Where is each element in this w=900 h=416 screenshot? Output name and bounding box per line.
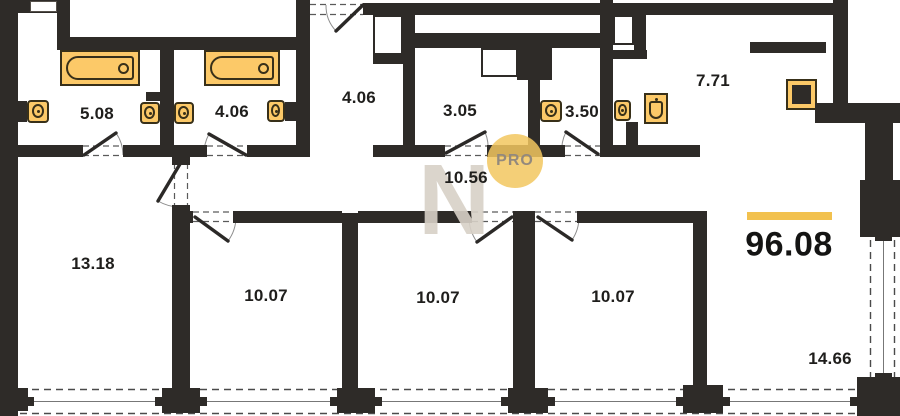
room-area-label-wc-2: 3.50 <box>565 102 599 122</box>
vent-niche <box>30 1 57 12</box>
watermark-logo-letter: N <box>418 150 490 250</box>
room-area-label-bedroom-3: 10.07 <box>416 288 460 308</box>
room-area-label-corridor: 10.56 <box>444 168 488 188</box>
watermark-pro-text: PRO <box>496 152 534 170</box>
wall-kitchen-niche <box>750 42 826 53</box>
wall-corr-bot-d <box>577 211 693 223</box>
window-nub <box>723 397 730 406</box>
room-area-label-bathroom-2: 4.06 <box>215 102 249 122</box>
room-area-label-wc-1: 3.05 <box>443 101 477 121</box>
duct-wc1-shaft <box>481 48 518 77</box>
wall-corr-top-c <box>247 145 296 157</box>
wall-kitchen-bottom <box>600 145 700 157</box>
wall-step-topleft <box>57 13 70 39</box>
window-nub <box>155 397 162 406</box>
total-area-value: 96.08 <box>745 226 833 265</box>
pillar-bottom-1 <box>162 388 200 413</box>
window-nub <box>676 397 683 406</box>
watermark-pro-badge: PRO <box>487 134 543 188</box>
pillar-bottom-0 <box>14 388 28 411</box>
window-nub <box>501 397 508 406</box>
wall-top-main <box>415 3 845 15</box>
window-nub <box>850 397 857 406</box>
wall-corr-bot-b <box>233 211 342 223</box>
room-area-label-bedroom-4: 10.07 <box>591 287 635 307</box>
window-nub <box>200 397 207 406</box>
duct-kitchen-shaft <box>613 15 634 45</box>
duct-shaft-hall <box>373 15 403 55</box>
wall-bathrooms-top <box>57 37 310 50</box>
wall-bed1-lower <box>172 205 190 390</box>
wall-left-exterior <box>0 0 18 416</box>
window-nub <box>875 373 892 382</box>
wall-step-right <box>815 103 900 123</box>
wall-bath-divider-stub <box>146 92 162 101</box>
wall-kitchen-shaft-bottom <box>613 50 647 59</box>
window-nub <box>375 397 382 406</box>
floor-plan: 5.08 4.06 4.06 3.05 3.50 7.71 10.56 13.1… <box>0 0 900 416</box>
wall-corr-bot-a <box>183 211 193 223</box>
wall-bath-divider <box>160 50 174 157</box>
wall-hall-left <box>296 0 310 157</box>
wall-living-divider <box>693 211 707 390</box>
wall-bed3-divider <box>513 211 535 390</box>
room-area-label-entry-hall: 4.06 <box>342 88 376 108</box>
pillar-right-upper <box>860 180 900 237</box>
room-area-label-bathroom-1: 5.08 <box>80 104 114 124</box>
pillar-bottom-3 <box>508 388 548 413</box>
pillar-bottom-right <box>857 377 900 416</box>
window-nub <box>27 397 34 406</box>
wall-kitchen-stub <box>626 122 638 147</box>
wall-wc1-wc2-divider <box>528 48 540 145</box>
wall-living-right <box>865 123 893 183</box>
wall-corr-top-a <box>13 145 83 157</box>
window-nub <box>330 397 337 406</box>
room-area-label-bedroom-1: 13.18 <box>71 254 115 274</box>
window-nub <box>875 232 892 241</box>
room-area-label-kitchen: 7.71 <box>696 71 730 91</box>
pillar-bottom-4 <box>683 385 723 413</box>
pillar-bottom-2 <box>337 388 375 413</box>
wall-bed1-upper <box>172 157 190 165</box>
wall-bed2-divider <box>342 213 358 390</box>
wall-wc2-kitchen <box>600 0 613 157</box>
wall-wc-top <box>412 33 602 48</box>
window-nub <box>548 397 555 406</box>
total-area-underline <box>747 212 832 220</box>
wall-hall-right <box>403 3 415 157</box>
room-area-label-living-room: 14.66 <box>808 349 852 369</box>
room-area-label-bedroom-2: 10.07 <box>244 286 288 306</box>
